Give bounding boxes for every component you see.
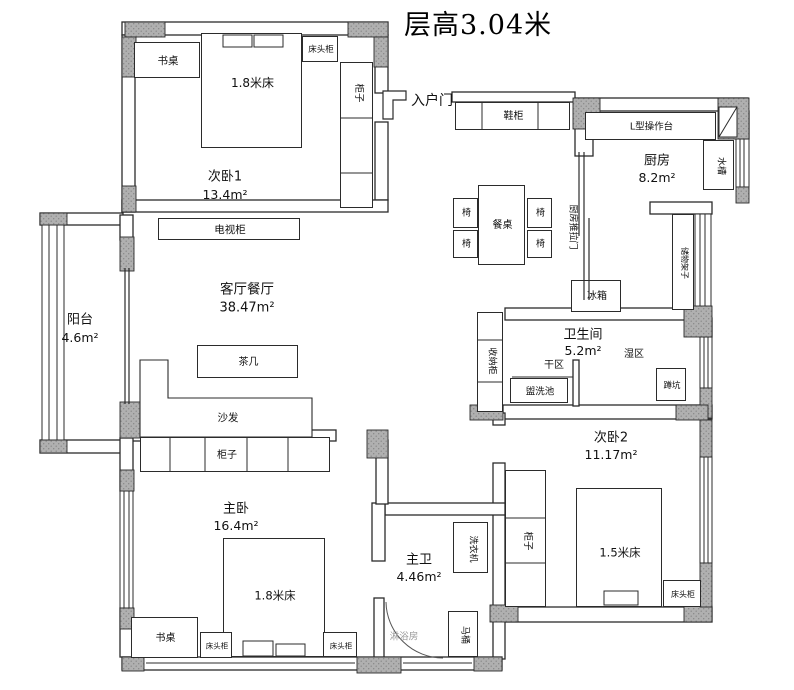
furniture-chair2: 椅 bbox=[453, 230, 478, 258]
furniture-nightstand4: 床头柜 bbox=[323, 632, 357, 657]
furniture-wardrobe3: 柜子 bbox=[140, 437, 330, 472]
room-area-zhuwo: 16.4m² bbox=[213, 520, 258, 533]
furniture-chair3: 椅 bbox=[527, 198, 552, 228]
furniture-shoe-cabinet: 鞋柜 bbox=[455, 102, 570, 130]
furniture-label-desk1: 书桌 bbox=[158, 56, 179, 67]
furniture-label-squat-toilet: 蹲坑 bbox=[663, 381, 680, 390]
furniture-label-nightstand3: 床头柜 bbox=[206, 642, 229, 650]
room-area-keting: 38.47m² bbox=[219, 302, 274, 315]
furniture-desk1: 书桌 bbox=[134, 42, 200, 78]
furniture-label-washbasin: 盥洗池 bbox=[526, 387, 555, 397]
furniture-squat-toilet: 蹲坑 bbox=[656, 368, 686, 401]
annotation-sofa: 沙发 bbox=[218, 413, 239, 424]
annotation-shower-room: 淋浴房 bbox=[390, 632, 419, 642]
furniture-label-nightstand1: 床头柜 bbox=[308, 46, 334, 55]
furniture-nightstand2: 床头柜 bbox=[663, 580, 701, 607]
room-name-zhuwei: 主卫 bbox=[406, 554, 432, 567]
furniture-bed1: 1.8米床 bbox=[201, 33, 302, 148]
furniture-label-washer: 洗衣机 bbox=[467, 535, 476, 562]
furniture-label-chair1: 椅 bbox=[462, 210, 471, 219]
room-area-ciwo2: 11.17m² bbox=[585, 449, 638, 462]
furniture-label-storage-cabinet: 收纳柜 bbox=[487, 347, 496, 374]
annotation-wet-zone: 湿区 bbox=[624, 350, 644, 360]
annotation-kitchen-sliding-door: 厨房推拉门 bbox=[568, 204, 577, 249]
furniture-label-wardrobe3: 柜子 bbox=[217, 451, 237, 461]
furniture-fridge: 冰箱 bbox=[571, 280, 621, 312]
furniture-wardrobe2: 柜子 bbox=[505, 470, 546, 607]
furniture-label-toilet: 马桶 bbox=[460, 626, 469, 644]
room-name-weishengjian: 卫生间 bbox=[563, 329, 602, 342]
furniture-tea-table: 茶几 bbox=[197, 345, 298, 378]
furniture-storage-shelf: 储物架子 bbox=[672, 214, 694, 310]
furniture-label-bed2: 1.5米床 bbox=[599, 547, 640, 559]
furniture-sink: 水槽 bbox=[703, 140, 734, 190]
furniture-nightstand1: 床头柜 bbox=[302, 36, 338, 62]
furniture-label-fridge: 冰箱 bbox=[587, 292, 607, 302]
furniture-label-sink: 水槽 bbox=[715, 157, 724, 175]
furniture-dining-table: 餐桌 bbox=[478, 185, 525, 265]
furniture-counter: L型操作台 bbox=[585, 112, 716, 140]
furniture-label-tea-table: 茶几 bbox=[239, 358, 259, 368]
furniture-label-dining-table: 餐桌 bbox=[493, 221, 513, 231]
annotation-dry-zone: 干区 bbox=[544, 361, 564, 371]
furniture-nightstand3: 床头柜 bbox=[200, 632, 232, 658]
furniture-bed3: 1.8米床 bbox=[223, 538, 325, 657]
annotation-entry-door: 入户门 bbox=[411, 94, 453, 108]
furniture-label-desk2: 书桌 bbox=[156, 634, 176, 644]
furniture-label-chair4: 椅 bbox=[536, 241, 545, 250]
furniture-label-tv-cabinet: 电视柜 bbox=[214, 225, 246, 236]
furniture-desk2: 书桌 bbox=[131, 617, 198, 658]
room-area-weishengjian: 5.2m² bbox=[564, 345, 601, 358]
room-area-ciwo1: 13.4m² bbox=[202, 189, 247, 202]
furniture-chair1: 椅 bbox=[453, 198, 478, 228]
furniture-chair4: 椅 bbox=[527, 230, 552, 258]
ceiling-height-title: 层高3.04米 bbox=[404, 3, 552, 42]
room-name-keting: 客厅餐厅 bbox=[220, 283, 274, 297]
furniture-washer: 洗衣机 bbox=[453, 522, 488, 573]
furniture-tv-cabinet: 电视柜 bbox=[158, 218, 300, 240]
room-name-ciwo2: 次卧2 bbox=[594, 432, 628, 445]
furniture-washbasin: 盥洗池 bbox=[510, 378, 568, 403]
furniture-label-storage-shelf: 储物架子 bbox=[680, 247, 688, 279]
furniture-wardrobe1: 柜子 bbox=[340, 62, 373, 208]
furniture-label-nightstand4: 床头柜 bbox=[330, 642, 353, 650]
room-area-chufang: 8.2m² bbox=[638, 172, 675, 185]
room-area-zhuwei: 4.46m² bbox=[396, 571, 441, 584]
furniture-label-counter: L型操作台 bbox=[630, 122, 673, 132]
room-area-yangtai: 4.6m² bbox=[61, 332, 98, 345]
furniture-label-shoe-cabinet: 鞋柜 bbox=[504, 112, 524, 122]
furniture-label-bed1: 1.8米床 bbox=[231, 77, 274, 89]
furniture-bed2: 1.5米床 bbox=[576, 488, 662, 607]
floor-plan: 层高3.04米 bbox=[0, 0, 794, 690]
furniture-label-bed3: 1.8米床 bbox=[254, 590, 295, 602]
room-name-zhuwo: 主卧 bbox=[223, 503, 249, 516]
furniture-label-wardrobe2: 柜子 bbox=[522, 531, 532, 550]
furniture-toilet: 马桶 bbox=[448, 611, 478, 657]
furniture-label-nightstand2: 床头柜 bbox=[671, 591, 695, 599]
furniture-storage-cabinet: 收纳柜 bbox=[477, 312, 503, 412]
room-name-ciwo1: 次卧1 bbox=[208, 171, 242, 184]
room-name-chufang: 厨房 bbox=[644, 155, 670, 168]
room-name-yangtai: 阳台 bbox=[67, 314, 93, 327]
furniture-label-chair3: 椅 bbox=[536, 210, 545, 219]
furniture-label-wardrobe1: 柜子 bbox=[353, 83, 363, 102]
furniture-label-chair2: 椅 bbox=[462, 241, 471, 250]
